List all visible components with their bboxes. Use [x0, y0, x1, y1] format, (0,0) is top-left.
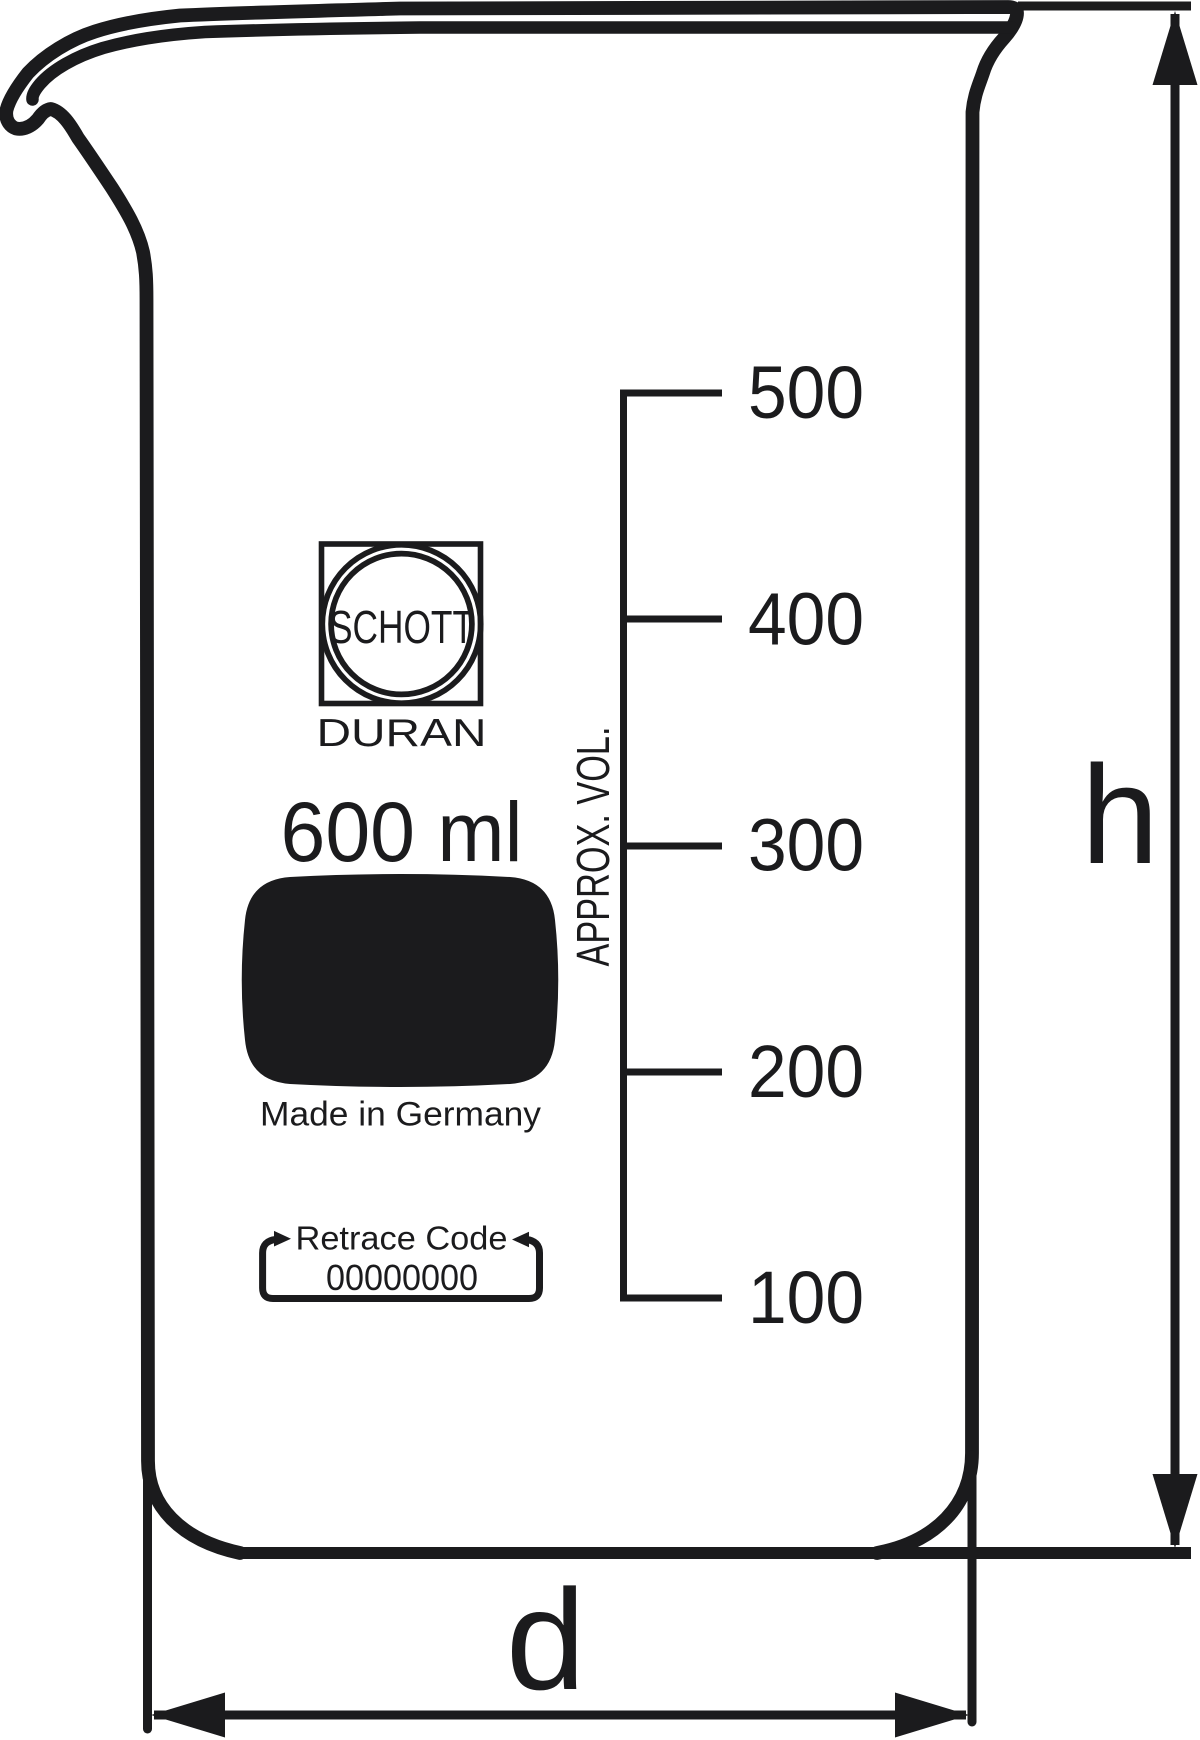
svg-text:d: d [506, 1561, 586, 1720]
svg-text:200: 200 [748, 1030, 864, 1113]
svg-text:300: 300 [748, 804, 864, 887]
svg-text:500: 500 [748, 351, 864, 434]
svg-text:100: 100 [748, 1256, 864, 1339]
svg-text:h: h [1081, 736, 1159, 893]
svg-text:Retrace Code: Retrace Code [296, 1220, 508, 1257]
svg-text:00000000: 00000000 [326, 1257, 478, 1298]
svg-text:APPROX. VOL.: APPROX. VOL. [567, 727, 619, 967]
svg-text:400: 400 [748, 577, 864, 660]
svg-text:Made in Germany: Made in Germany [260, 1096, 541, 1134]
svg-text:SCHOTT: SCHOTT [329, 601, 474, 653]
svg-text:DURAN: DURAN [317, 712, 487, 755]
svg-text:600 ml: 600 ml [281, 785, 523, 879]
